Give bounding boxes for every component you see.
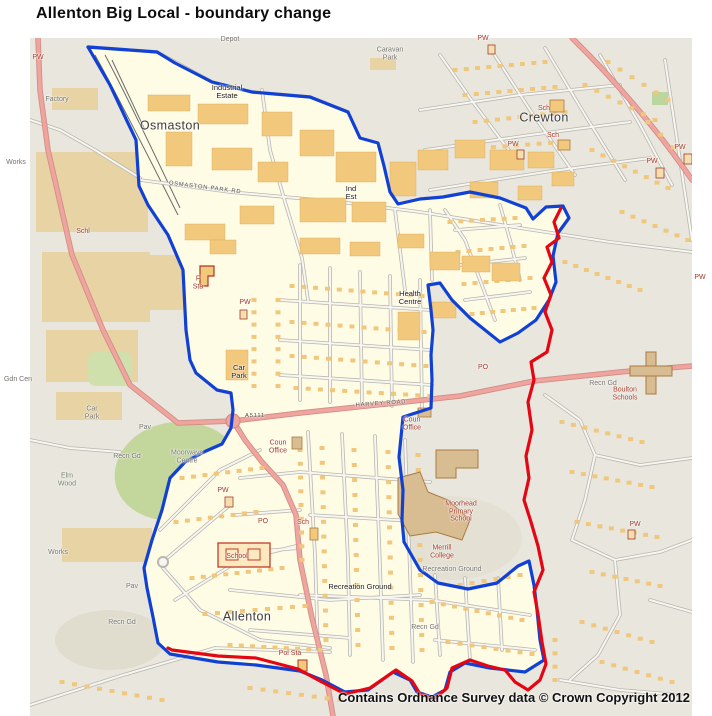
map-canvas [30,38,692,716]
map-label: PW [694,274,705,282]
roundabout [158,557,168,567]
copyright-attribution: Contains Ordnance Survey data © Crown Co… [338,690,690,705]
page-title: Allenton Big Local - boundary change [36,5,331,23]
map-document: Allenton Big Local - boundary change [0,0,712,716]
map-label: Gdn Cen [4,376,32,384]
map-image [30,38,692,716]
map-label: Works [6,159,26,167]
